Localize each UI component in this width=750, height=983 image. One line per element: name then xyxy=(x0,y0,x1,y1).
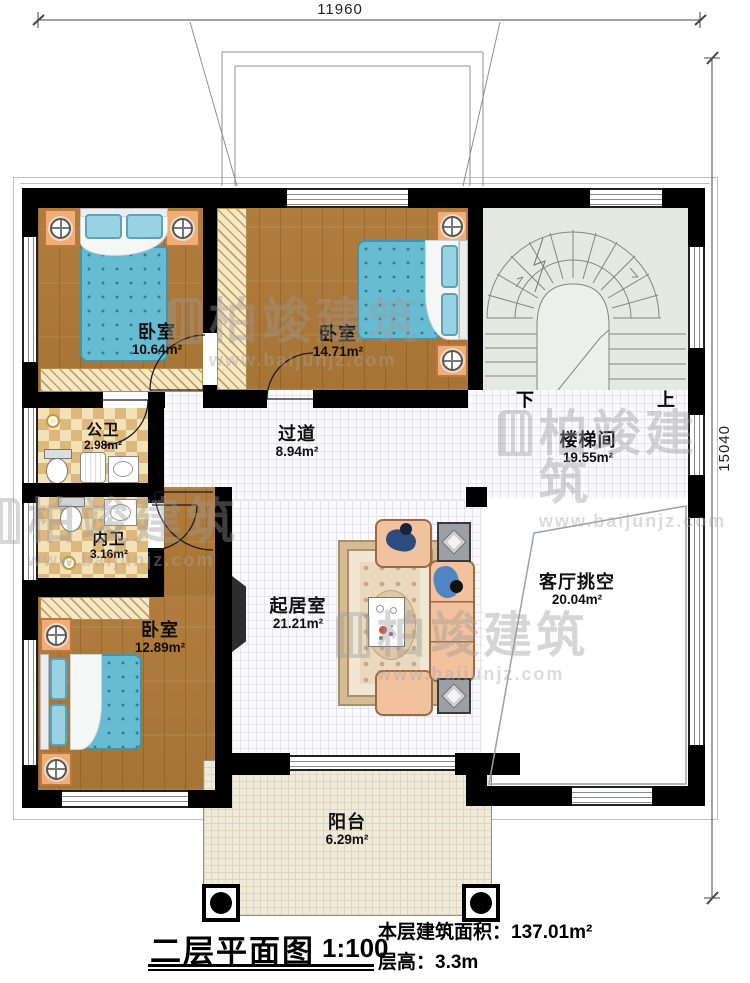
stair-landing xyxy=(537,284,609,390)
stair-up-label: 上 xyxy=(657,386,675,412)
floor-area-stat: 本层建筑面积：137.01m² xyxy=(378,917,592,944)
room-label-corridor: 过道8.94m² xyxy=(276,424,319,459)
floor-height-stat: 层高：3.3m xyxy=(378,947,478,974)
room-label-public-bath: 公卫2.98m² xyxy=(84,422,122,453)
living-void-outline xyxy=(489,506,686,784)
room-label-bedroom-bottom-left: 卧室12.89m² xyxy=(135,620,185,655)
title-underline xyxy=(148,969,374,971)
room-label-private-bath: 内卫3.16m² xyxy=(90,531,128,562)
room-label-living-void: 客厅挑空20.04m² xyxy=(539,572,615,607)
floor-plan-canvas: 11960 15040 xyxy=(0,0,750,983)
stairs-and-doors-linework-svg xyxy=(0,0,750,983)
room-label-balcony: 阳台6.29m² xyxy=(326,812,369,847)
room-label-stairwell: 楼梯间19.55m² xyxy=(560,430,617,465)
room-label-bedroom-top-left: 卧室10.64m² xyxy=(132,322,182,357)
room-label-bedroom-top-middle: 卧室14.71m² xyxy=(313,324,363,359)
room-label-living-room: 起居室21.21m² xyxy=(270,596,327,631)
stair-down-label: 下 xyxy=(516,386,534,412)
title-underline xyxy=(148,964,374,967)
